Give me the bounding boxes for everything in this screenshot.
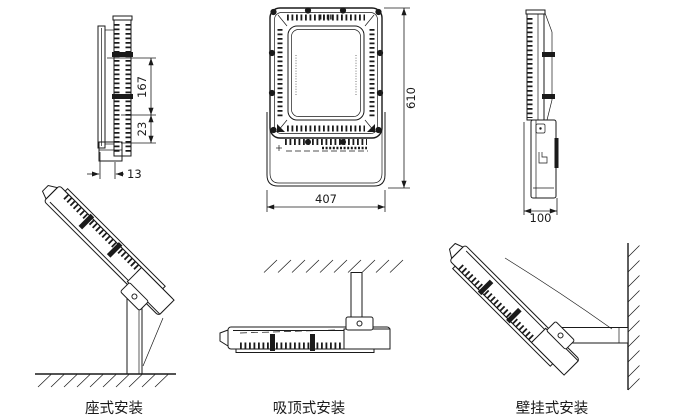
dim-label-23: 23 [135, 122, 149, 137]
scene-wall-mount: 壁挂式安装 [441, 232, 639, 417]
floodlight-tilted [31, 177, 176, 322]
drawing-canvas: 167 23 13 [0, 0, 690, 420]
driver-box-side [531, 120, 559, 198]
mount-label-ceiling: 吸顶式安装 [273, 400, 346, 417]
dim-label-407: 407 [315, 192, 337, 206]
junction-fins-nameplate [276, 139, 368, 151]
mount-label-wall: 壁挂式安装 [516, 400, 589, 417]
scene-base-mount: 座式安装 [31, 177, 176, 417]
lamp-head-front [269, 7, 383, 138]
mount-label-base: 座式安装 [85, 400, 143, 417]
scene-ceiling-mount: 吸顶式安装 [220, 260, 403, 417]
floodlight-horizontal [220, 317, 390, 353]
dim-label-167: 167 [135, 76, 149, 98]
view-front: 610 407 [267, 7, 418, 212]
dim-label-610: 610 [404, 87, 418, 109]
dim-label-100: 100 [530, 211, 552, 225]
floodlight-technical-drawing: 167 23 13 [0, 0, 690, 420]
dimension-610: 610 [384, 8, 418, 188]
view-side-right: 100 [524, 10, 559, 225]
wall-hatching [628, 243, 640, 390]
floodlight-wall-tilted [441, 232, 586, 377]
dimension-407: 407 [267, 190, 385, 212]
lamp-body-side-right [526, 10, 555, 120]
lamp-body-side [98, 16, 133, 161]
ground-hatching [35, 374, 176, 387]
dimension-100: 100 [524, 122, 557, 225]
view-side-left: 167 23 13 [87, 16, 156, 181]
ceiling-hatching [264, 260, 403, 273]
dim-label-13: 13 [127, 167, 142, 181]
